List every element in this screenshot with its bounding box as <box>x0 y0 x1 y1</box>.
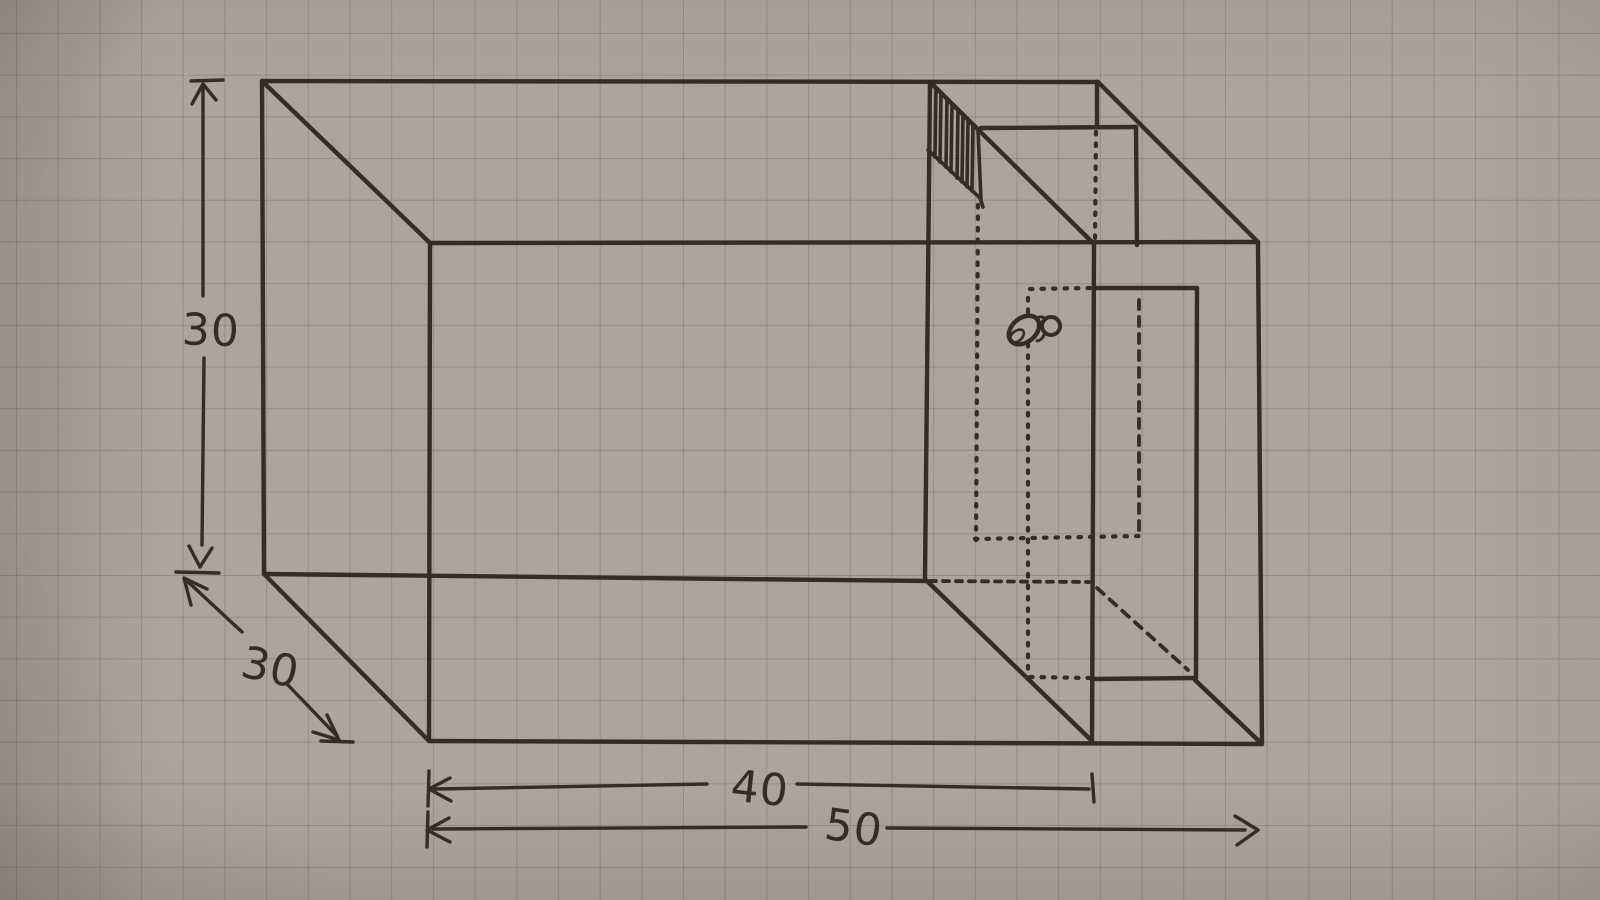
bottom-right-depth-edge-hidden <box>1097 588 1188 670</box>
inner-front-bottom-edge-hidden <box>1030 677 1090 678</box>
dim50-line-right <box>887 828 1245 830</box>
partition-top-edge <box>930 82 1093 243</box>
front-left-edge <box>429 243 430 741</box>
top-right-depth-edge <box>1098 82 1258 242</box>
back-left-edge <box>262 81 264 574</box>
depth-line-upper <box>186 580 242 632</box>
height-line-lower <box>202 358 204 545</box>
grate-right-edge <box>978 130 981 200</box>
dim50-line-left <box>433 827 806 829</box>
partition-back-edge <box>925 82 930 578</box>
top-left-depth-edge <box>262 81 430 243</box>
inner-front-right-edge <box>1196 288 1197 678</box>
outer-tank-box <box>262 81 1262 744</box>
inner-back-bottom-edge <box>975 536 1140 539</box>
dim40-line-right <box>797 784 1089 789</box>
photo-of-sketch: 30 30 40 50 <box>0 0 1600 900</box>
inner-compartment-box <box>975 127 1197 679</box>
inner-back-right-edge-upper <box>1136 127 1137 245</box>
depth-end-tick <box>321 741 353 742</box>
partition-front-edge <box>1092 243 1094 742</box>
back-bottom-edge <box>264 574 927 581</box>
height-bottom-tick <box>176 572 219 573</box>
inner-front-bottom-edge <box>1094 678 1196 679</box>
partition-length-label: 40 <box>728 761 791 818</box>
height-arrow-down-icon <box>189 546 212 567</box>
inner-back-top-edge <box>981 127 1136 128</box>
dim-depth: 30 <box>184 578 353 742</box>
height-top-tick <box>191 80 223 81</box>
back-right-edge-hidden <box>1095 132 1096 240</box>
tap-icon <box>1003 310 1060 350</box>
dim-height: 30 <box>176 80 241 573</box>
tank-sketch: 30 30 40 50 <box>0 0 1600 900</box>
bottom-right-depth-edge <box>1195 680 1262 744</box>
inner-back-left-edge <box>976 205 978 540</box>
partition-wall <box>925 82 1094 742</box>
inner-front-top-edge-hidden <box>1030 288 1092 289</box>
dim-partition-length: 40 <box>428 761 1094 818</box>
total-length-label: 50 <box>821 799 886 858</box>
dim40-right-tick <box>1092 774 1094 802</box>
height-label: 30 <box>181 304 241 357</box>
front-right-edge <box>1258 242 1262 744</box>
front-bottom-edge <box>429 741 1262 744</box>
partition-bottom-edge <box>927 581 1091 740</box>
back-top-edge <box>262 81 1098 82</box>
front-top-edge <box>430 242 1258 243</box>
back-bottom-edge-hidden <box>930 581 1089 582</box>
dim-total-length: 50 <box>427 799 1258 858</box>
tap-knob <box>1042 317 1060 335</box>
dim40-line-left <box>435 784 707 789</box>
depth-label: 30 <box>237 637 304 699</box>
